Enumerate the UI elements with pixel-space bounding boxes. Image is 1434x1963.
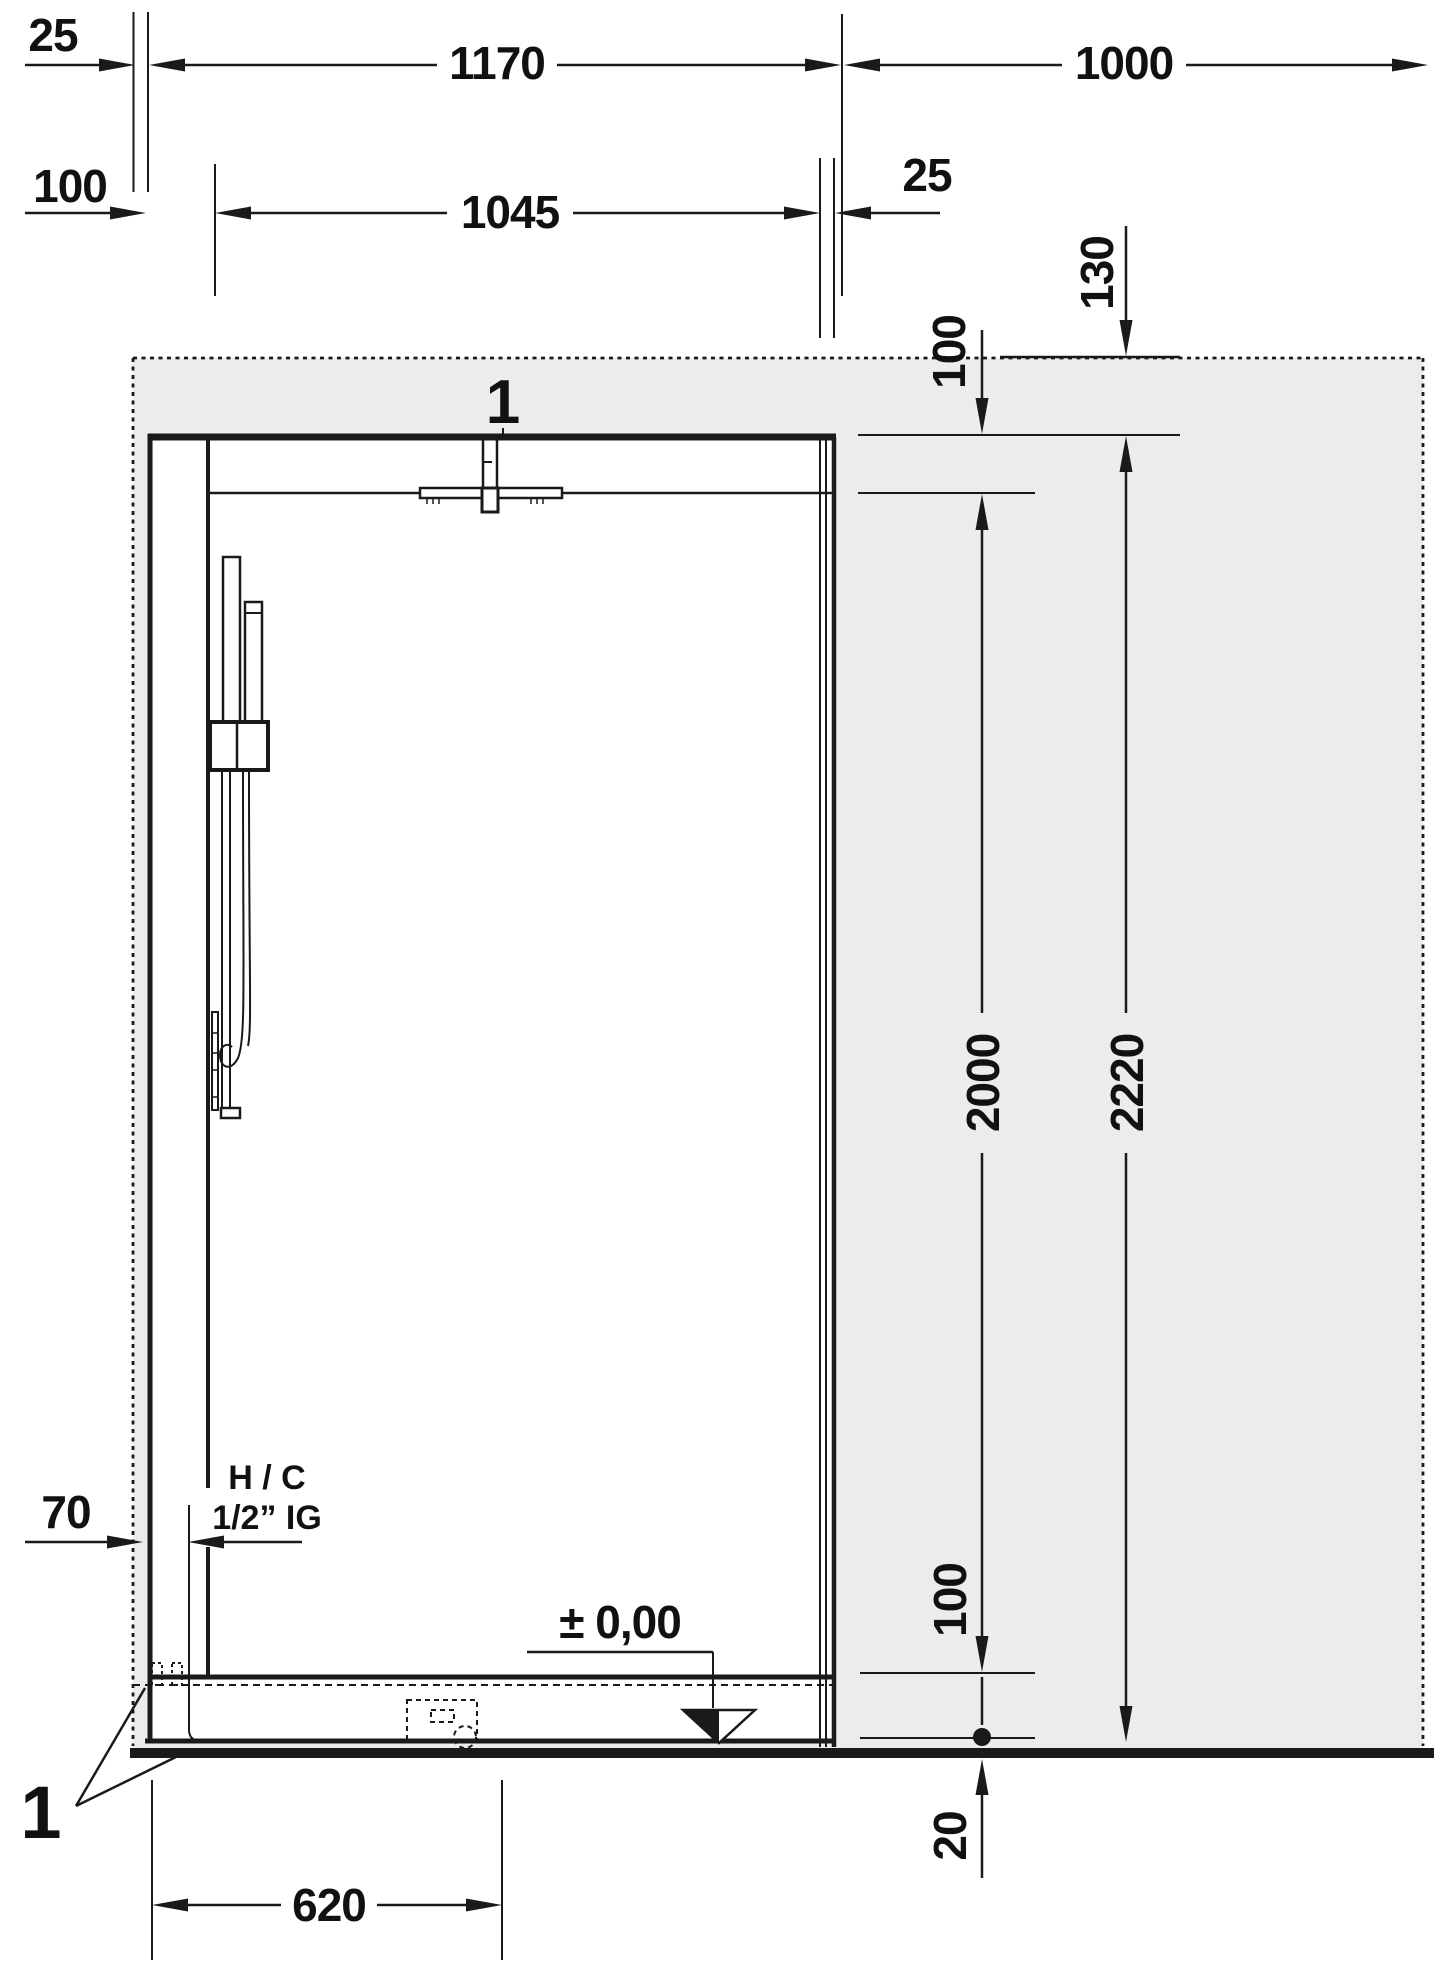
floor-level-label: ± 0,00 [559, 1596, 681, 1648]
water-supply-label-2: 1/2” IG [212, 1499, 322, 1537]
shower-installation-diagram: 25 1170 1000 100 1045 25 130 100 [0, 0, 1434, 1963]
dim-wall-thickness-label: 25 [28, 9, 78, 61]
arrowhead [99, 59, 135, 72]
extension-lines-row2 [215, 158, 834, 338]
dim-floor-buildup-label: 20 [924, 1811, 976, 1860]
water-supply-label-1: H / C [228, 1459, 305, 1497]
dim-glass-width-label: 1045 [461, 186, 560, 238]
dim-opening-width-label: 1170 [449, 37, 545, 89]
arrowhead [110, 207, 146, 220]
dim-drain-offset-label: 620 [292, 1879, 366, 1931]
arrowhead [1392, 59, 1428, 72]
rail-bracket [210, 722, 268, 770]
hand-shower [245, 602, 262, 722]
callout-1-bottom-label: 1 [20, 1771, 61, 1854]
shower-rail-upper [223, 557, 240, 722]
arrowhead [466, 1899, 502, 1912]
dim-profile-offset-label: 100 [33, 160, 107, 212]
rail-foot [221, 1108, 240, 1118]
callout-1-top-label: 1 [486, 368, 520, 437]
floor-slab [130, 1748, 1434, 1758]
arrowhead [835, 207, 871, 220]
callout-panel-top: 1 [486, 368, 520, 437]
mixer-strip [212, 1012, 218, 1110]
dim-side-wall-label: 1000 [1075, 37, 1173, 89]
arrowhead [152, 1899, 188, 1912]
dim-base-clearance-label: 100 [924, 1563, 976, 1637]
dim-row-second: 100 1045 25 [25, 149, 952, 338]
dim-total-height-label: 2220 [1101, 1034, 1153, 1132]
dim-row-top: 25 1170 1000 [25, 9, 1428, 296]
arrowhead [976, 1759, 989, 1795]
arrowhead [215, 207, 251, 220]
arrowhead [149, 59, 185, 72]
floor-reference-dot [973, 1728, 991, 1746]
dim-drain-position: 620 [152, 1780, 502, 1960]
arrowhead [784, 207, 820, 220]
arrowhead [805, 59, 841, 72]
arrowhead [1120, 320, 1133, 356]
wall-section [130, 358, 1434, 1758]
dim-supply-offset-label: 70 [41, 1486, 90, 1538]
dim-top-clearance-label: 130 [1071, 236, 1123, 310]
arrowhead [844, 59, 880, 72]
extension-lines-620 [152, 1780, 502, 1960]
rain-head-hub [482, 488, 498, 512]
dim-glass-height-label: 2000 [957, 1034, 1009, 1132]
dim-door-wall-gap-label: 25 [902, 149, 952, 201]
installation-drawing: 25 1170 1000 100 1045 25 130 100 [0, 0, 1434, 1963]
dim-top-profile-label: 100 [923, 315, 975, 389]
